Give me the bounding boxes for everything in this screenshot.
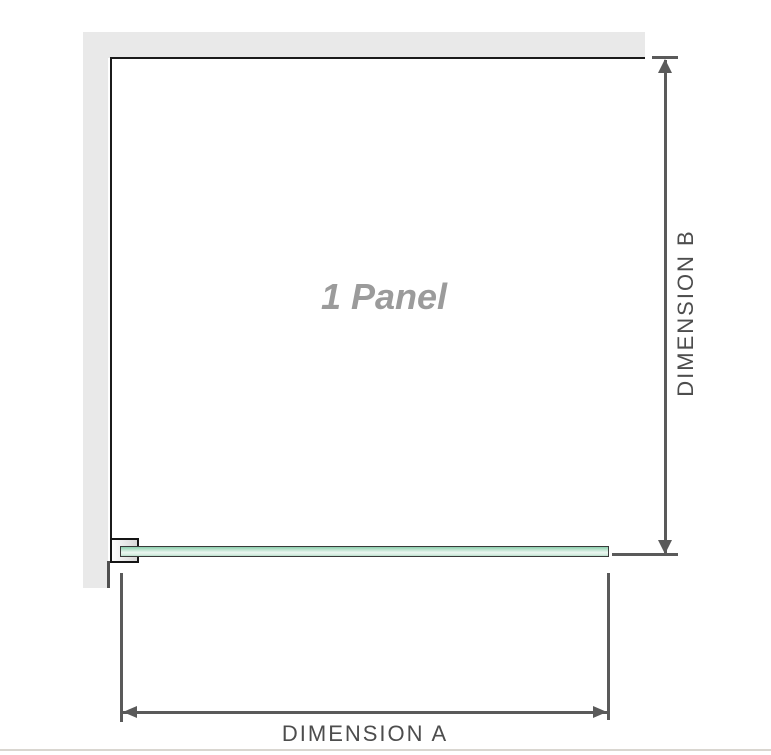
dimension-a-extension-left [120,573,123,722]
arrow-left-icon [123,706,137,718]
dimension-b-line [664,60,667,554]
arrow-right-icon [593,706,607,718]
dimension-b-label: DIMENSION B [673,229,699,396]
wall-left-strip [83,32,108,588]
dimension-a-label: DIMENSION A [282,721,448,747]
arrow-down-icon [658,540,672,554]
wall-edge-shadow [107,561,110,588]
bottom-divider [0,749,771,751]
panel-label: 1 Panel [259,277,509,317]
glass-panel-bar [120,546,609,557]
panel-left-edge [110,57,112,538]
panel-top-edge [110,57,645,59]
arrow-up-icon [658,59,672,73]
wall-top-strip [83,32,645,58]
dimension-a-line [123,711,607,714]
dimension-a-extension-right [607,573,610,720]
shower-screen-diagram: 1 Panel DIMENSION B DIMENSION A [0,0,771,755]
